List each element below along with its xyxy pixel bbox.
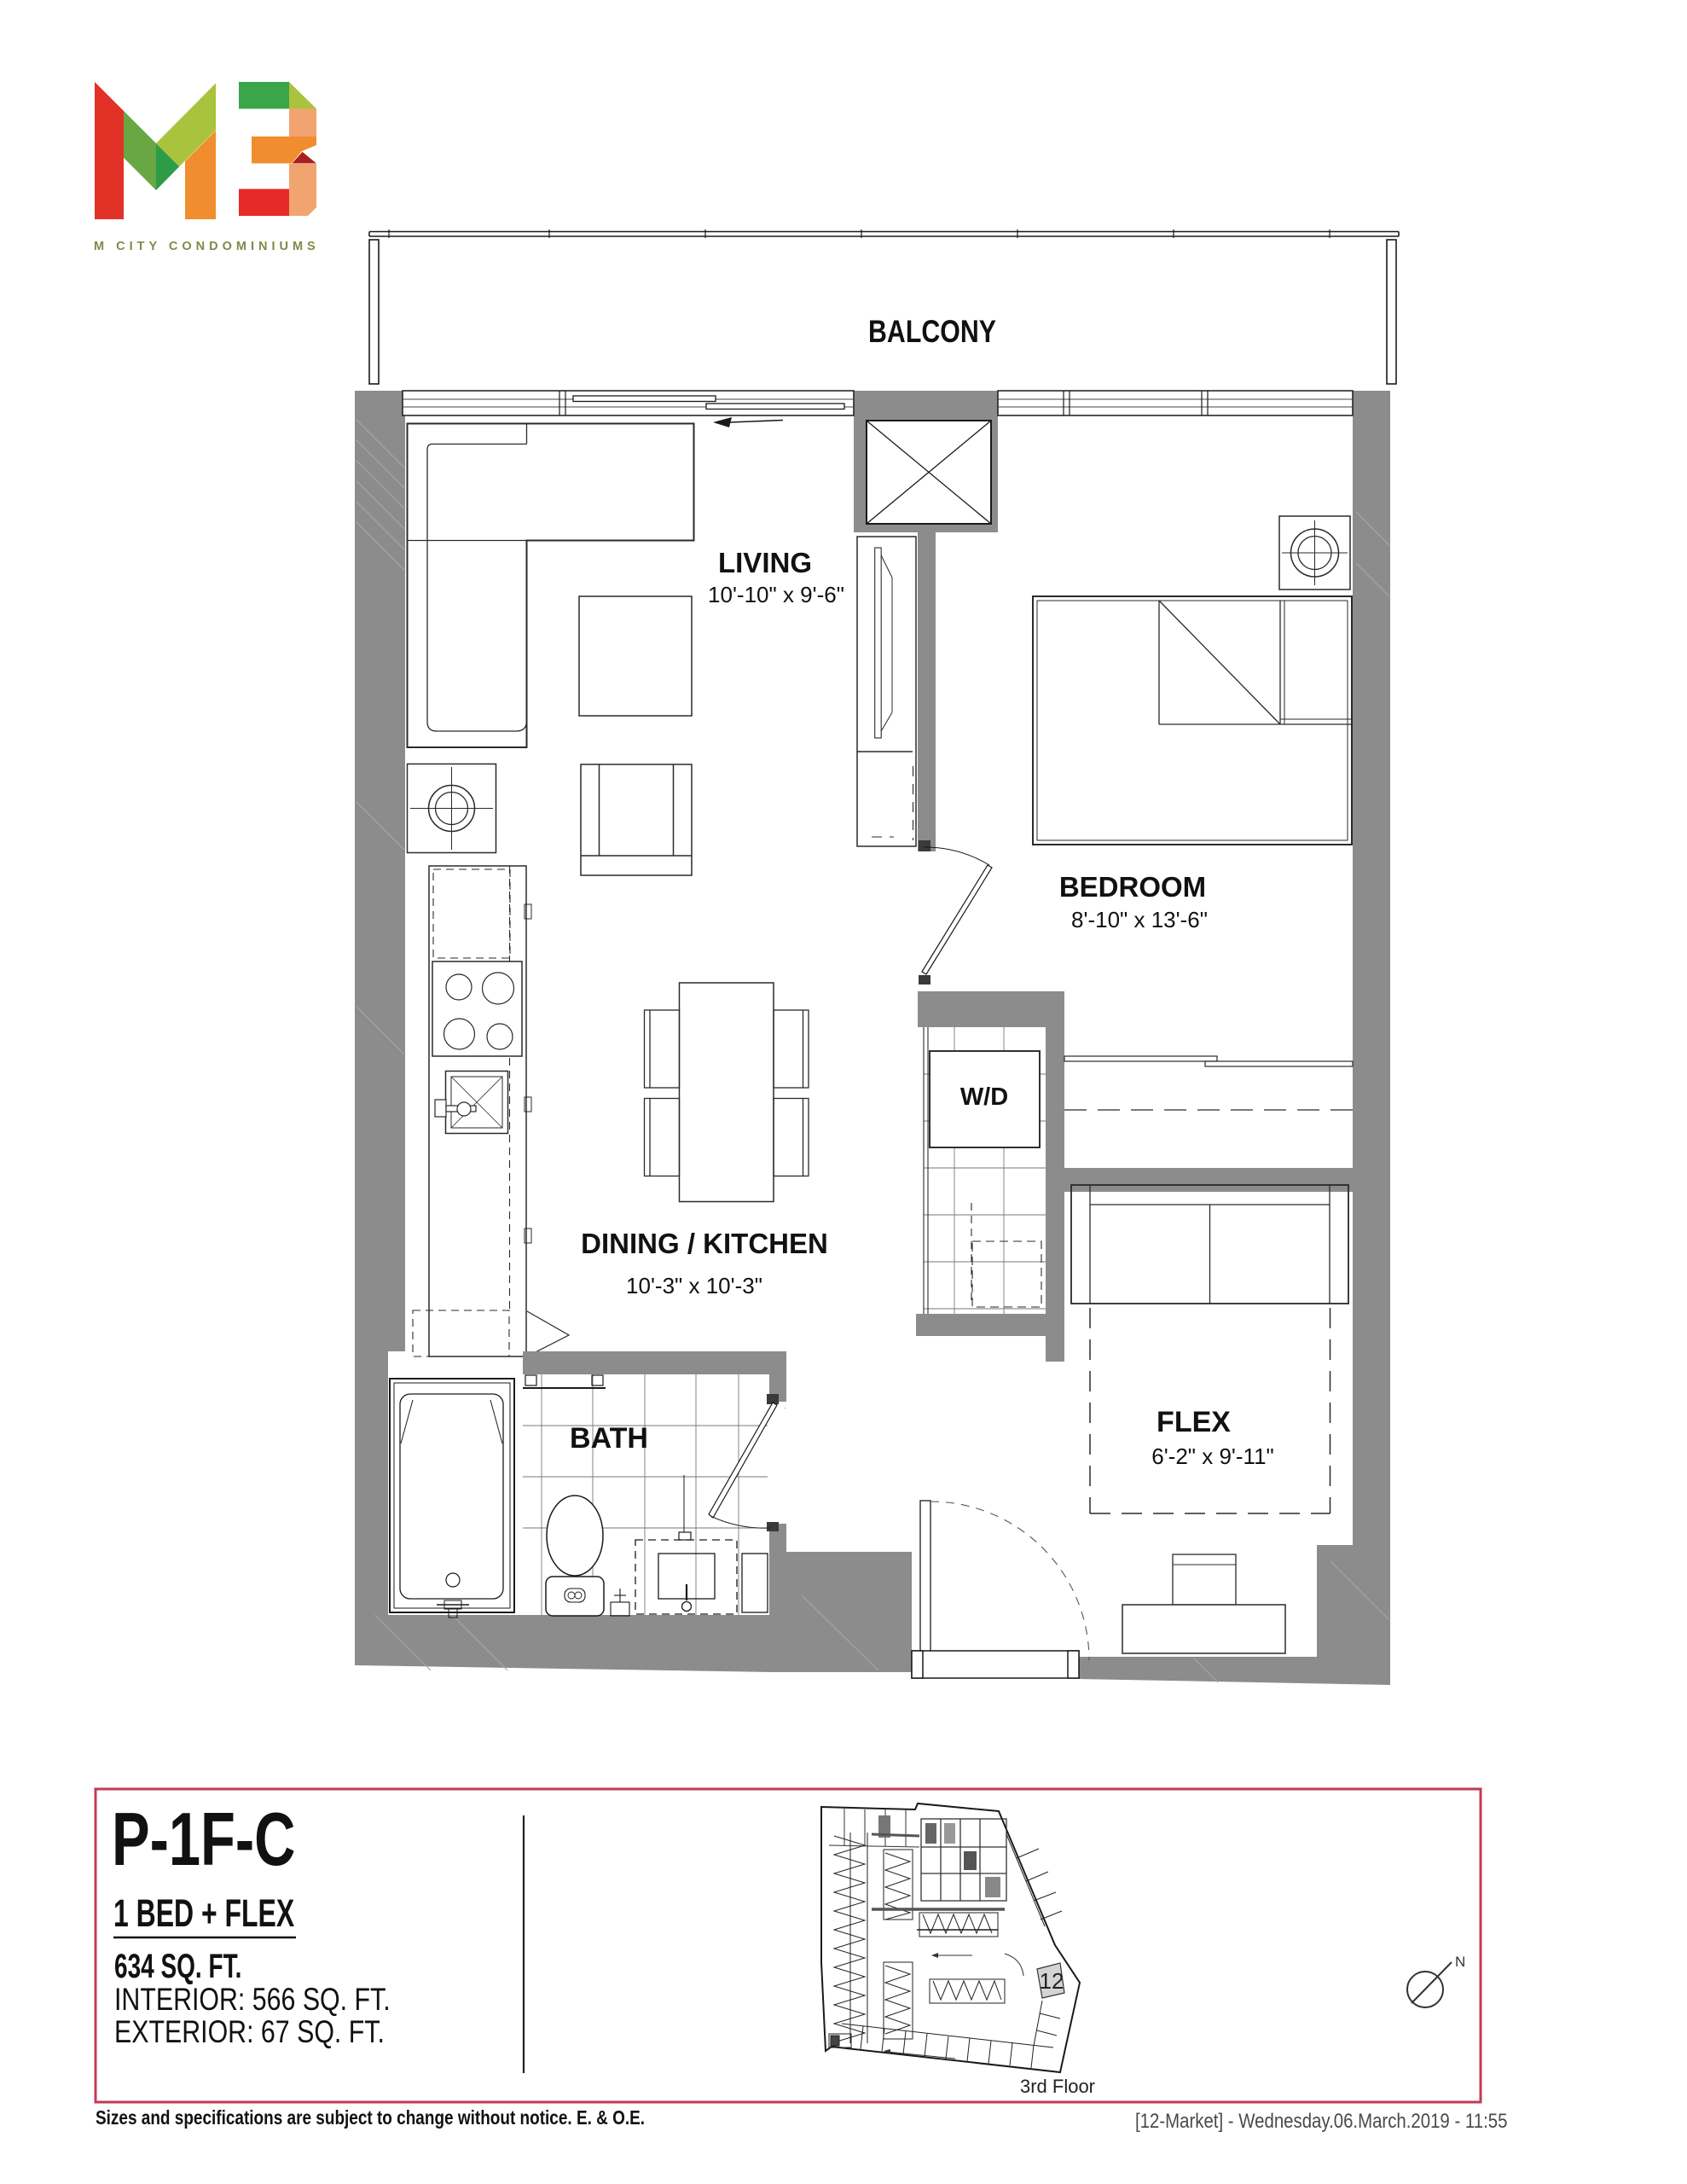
svg-text:BATH: BATH <box>570 1422 648 1455</box>
svg-text:8'-10" x 13'-6": 8'-10" x 13'-6" <box>1071 907 1208 932</box>
svg-text:FLEX: FLEX <box>1157 1406 1231 1438</box>
svg-text:1 BED + FLEX: 1 BED + FLEX <box>113 1893 294 1936</box>
svg-text:Sizes and specifications are s: Sizes and specifications are subject to … <box>96 2107 645 2129</box>
svg-text:W/D: W/D <box>960 1083 1008 1111</box>
svg-text:N: N <box>1455 1954 1465 1970</box>
svg-text:BALCONY: BALCONY <box>868 314 996 350</box>
svg-text:[12-Market] - Wednesday.06.M: [12-Market] - Wednesday.06.March.2019 - … <box>1135 2109 1507 2132</box>
svg-text:M CITY CONDOMINIUMS: M CITY CONDOMINIUMS <box>94 240 320 253</box>
svg-text:10'-10" x 9'-6": 10'-10" x 9'-6" <box>708 582 844 607</box>
svg-text:10'-3" x 10'-3": 10'-3" x 10'-3" <box>626 1273 762 1298</box>
svg-text:P-1F-C: P-1F-C <box>112 1797 295 1881</box>
svg-text:DINING / KITCHEN: DINING / KITCHEN <box>581 1228 828 1259</box>
svg-text:INTERIOR: 566 SQ. FT.: INTERIOR: 566 SQ. FT. <box>114 1982 391 2018</box>
svg-text:BEDROOM: BEDROOM <box>1059 871 1206 903</box>
svg-text:6'-2" x 9'-11": 6'-2" x 9'-11" <box>1151 1443 1274 1469</box>
svg-text:EXTERIOR: 67 SQ. FT.: EXTERIOR: 67 SQ. FT. <box>114 2014 385 2050</box>
svg-text:12: 12 <box>1040 1968 1064 1994</box>
svg-text:3rd Floor: 3rd Floor <box>1020 2076 1095 2097</box>
svg-text:634 SQ. FT.: 634 SQ. FT. <box>114 1948 241 1985</box>
svg-text:LIVING: LIVING <box>718 547 812 578</box>
